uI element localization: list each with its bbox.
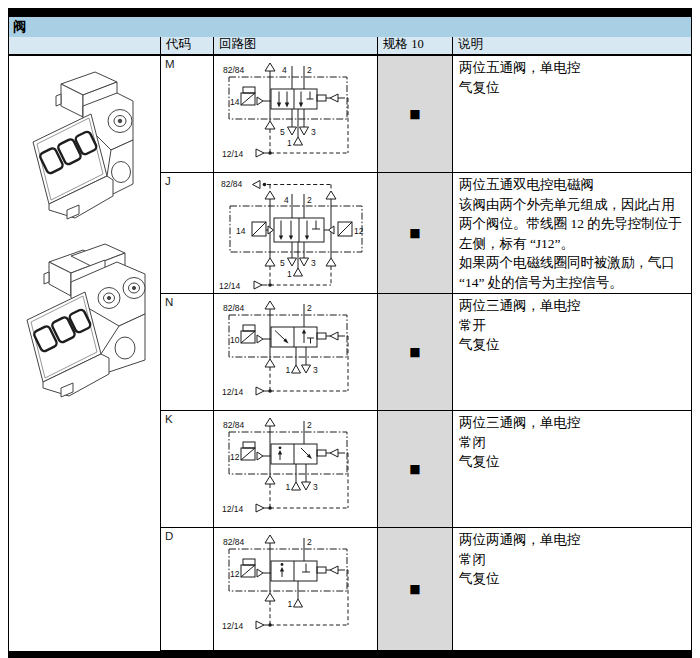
port-1-label: 1: [287, 269, 292, 279]
port-3-label: 3: [311, 127, 316, 137]
valve-symbol: [271, 444, 317, 464]
spec10-cell-N: ■: [377, 294, 452, 411]
spec-available-marker: ■: [409, 108, 420, 120]
circuit-cell-N: 82/84 2 10: [213, 294, 377, 411]
table-header-row: 代码 回路图 规格 10 说明: [9, 37, 691, 56]
description-line: 常开: [459, 316, 685, 336]
circuit-cell-J: 82/84 4 2: [213, 173, 377, 294]
pilot-top-label: 82/84: [221, 179, 243, 189]
page-title: 阀: [9, 17, 691, 37]
valve-code: N: [165, 296, 173, 308]
description-line: 两位五通阀，单电控: [459, 58, 685, 78]
spec-available-marker: ■: [409, 346, 420, 358]
code-cell-D: D: [160, 528, 213, 651]
solenoid-right-symbol: [324, 222, 352, 236]
pilot-bottom-label: 12/14: [222, 621, 244, 631]
description-line: 气复位: [459, 569, 685, 589]
port-3-label: 3: [313, 482, 318, 492]
catalog-page: 阀 代码 回路图 规格 10 说明: [8, 8, 692, 658]
top-rule: [8, 8, 692, 17]
header-cell-desc: 说明: [452, 37, 691, 54]
valve-symbol: [271, 327, 317, 347]
header-cell-circuit: 回路图: [213, 37, 377, 54]
circuit-diagram-5-2-single: 82/84 4 2: [214, 57, 376, 172]
solenoid-right-label: 12: [354, 226, 364, 236]
spec10-cell-K: ■: [377, 411, 452, 528]
solenoid-label: 10: [230, 335, 240, 345]
port-1-label: 1: [286, 365, 291, 375]
description-line: 该阀由两个外壳单元组成，因此占用两个阀位。带线圈 12 的先导控制位于左侧，标有…: [459, 195, 685, 254]
description-line: 两位两通阀，单电控: [459, 530, 685, 550]
spec10-cell-M: ■: [377, 56, 452, 173]
circuit-diagram-2-2-nc: 82/84 2 12: [214, 529, 376, 644]
table-frame: 阀 代码 回路图 规格 10 说明: [8, 17, 692, 651]
code-cell-K: K: [160, 411, 213, 528]
solenoid-symbol: [241, 442, 271, 460]
circuit-cell-D: 82/84 2 12: [213, 528, 377, 651]
description-line: 两位三通阀，单电控: [459, 413, 685, 433]
description-line: 如果两个电磁线圈同时被激励，气口 “14” 处的信号为主控信号。: [459, 253, 685, 292]
circuit-diagram-3-2-no: 82/84 2 10: [214, 295, 376, 410]
valve-symbol: [271, 89, 317, 109]
port-1-label: 1: [288, 599, 293, 609]
spec-available-marker: ■: [409, 583, 420, 595]
valve-code: J: [165, 175, 171, 187]
valve-symbol: [274, 218, 324, 242]
spec-available-marker: ■: [409, 463, 420, 475]
air-return-symbol: [270, 449, 348, 508]
port-2-label: 2: [307, 537, 312, 547]
code-cell-M: M: [160, 56, 213, 173]
solenoid-label: 12: [230, 452, 240, 462]
spec10-cell-D: ■: [377, 528, 452, 651]
port-2-label: 2: [307, 65, 312, 75]
valve-symbol: [271, 561, 317, 581]
spec10-cell-J: ■: [377, 173, 452, 294]
port-5-label: 5: [280, 258, 285, 268]
circuit-diagram-3-2-nc: 82/84 2 12: [214, 412, 376, 527]
port-2-label: 2: [307, 420, 312, 430]
description-cell-M: 两位五通阀，单电控 气复位: [452, 56, 691, 173]
solenoid-symbol: [241, 325, 271, 343]
bottom-rule: [8, 651, 692, 658]
port-4-label: 4: [284, 195, 289, 205]
spec-available-marker: ■: [409, 227, 420, 239]
port-5-label: 5: [280, 127, 285, 137]
valve-code: K: [165, 413, 173, 425]
description-line: 气复位: [459, 78, 685, 98]
header-cell-empty: [9, 37, 160, 54]
port-2-label: 2: [307, 195, 312, 205]
circuit-cell-M: 82/84 4 2: [213, 56, 377, 173]
description-line: 常闭: [459, 550, 685, 570]
description-line: 气复位: [459, 335, 685, 355]
header-cell-spec10: 规格 10: [377, 37, 452, 54]
pilot-top-label: 82/84: [223, 65, 245, 75]
pilot-top-label: 82/84: [223, 303, 245, 313]
solenoid-symbol: [241, 559, 271, 577]
port-3-label: 3: [313, 365, 318, 375]
solenoid-symbol: [241, 87, 271, 105]
table-body: M 82/84 4 2: [9, 56, 691, 651]
pilot-top-label: 82/84: [223, 537, 245, 547]
solenoid-left-label: 14: [236, 226, 246, 236]
valve-code: D: [165, 530, 173, 542]
description-cell-N: 两位三通阀，单电控 常开 气复位: [452, 294, 691, 411]
solenoid-label: 14: [230, 97, 240, 107]
port-2-label: 2: [307, 303, 312, 313]
solenoid-label: 12: [230, 569, 240, 579]
circuit-diagram-5-2-double: 82/84 4 2: [214, 174, 376, 293]
port-1-label: 1: [287, 138, 292, 148]
description-line: 气复位: [459, 452, 685, 472]
pilot-bottom-label: 12/14: [222, 504, 244, 514]
valve-illustration-double-solenoid: [13, 232, 160, 414]
product-images-cell: [9, 56, 160, 651]
air-return-symbol: [270, 332, 348, 391]
header-cell-code: 代码: [160, 37, 213, 54]
description-cell-D: 两位两通阀，单电控 常闭 气复位: [452, 528, 691, 651]
code-cell-N: N: [160, 294, 213, 411]
description-line: 常闭: [459, 433, 685, 453]
valve-code: M: [165, 58, 175, 70]
port-3-label: 3: [311, 258, 316, 268]
port-1-label: 1: [286, 482, 291, 492]
description-cell-K: 两位三通阀，单电控 常闭 气复位: [452, 411, 691, 528]
air-return-symbol: [270, 94, 348, 153]
port-4-label: 4: [282, 65, 287, 75]
valve-illustration-single-solenoid: [17, 62, 157, 230]
description-cell-J: 两位五通双电控电磁阀 该阀由两个外壳单元组成，因此占用两个阀位。带线圈 12 的…: [452, 173, 691, 294]
description-line: 两位五通双电控电磁阀: [459, 175, 685, 195]
pilot-bottom-label: 12/14: [222, 149, 244, 159]
code-cell-J: J: [160, 173, 213, 294]
description-line: 两位三通阀，单电控: [459, 296, 685, 316]
pilot-top-label: 82/84: [223, 420, 245, 430]
pilot-bottom-label: 12/14: [222, 387, 244, 397]
circuit-cell-K: 82/84 2 12: [213, 411, 377, 528]
pilot-bottom-label: 12/14: [219, 281, 241, 291]
